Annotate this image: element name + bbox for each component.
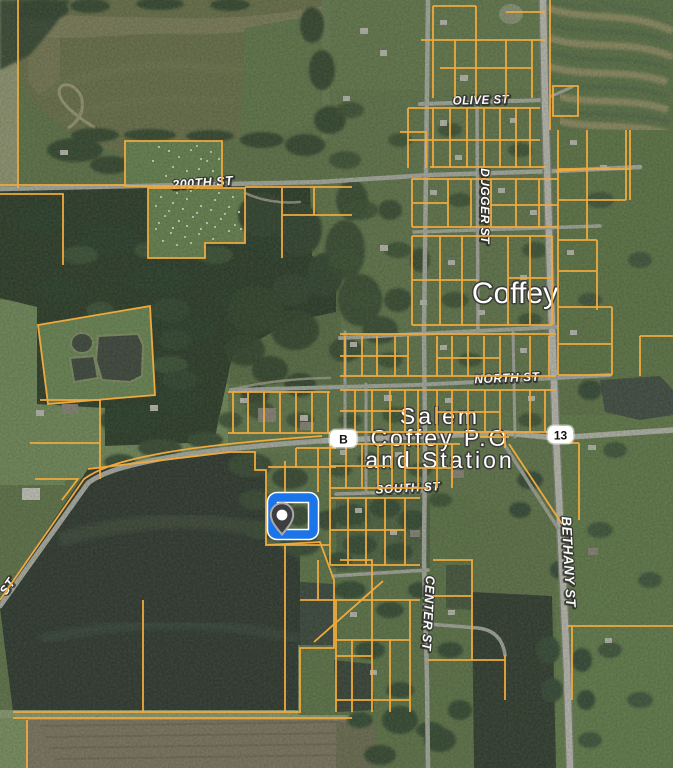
svg-text:Coffey: Coffey xyxy=(472,277,558,310)
svg-text:13: 13 xyxy=(554,429,568,443)
svg-text:and Station: and Station xyxy=(365,447,514,473)
svg-text:B: B xyxy=(339,433,348,447)
svg-text:OLIVE ST: OLIVE ST xyxy=(453,94,510,107)
